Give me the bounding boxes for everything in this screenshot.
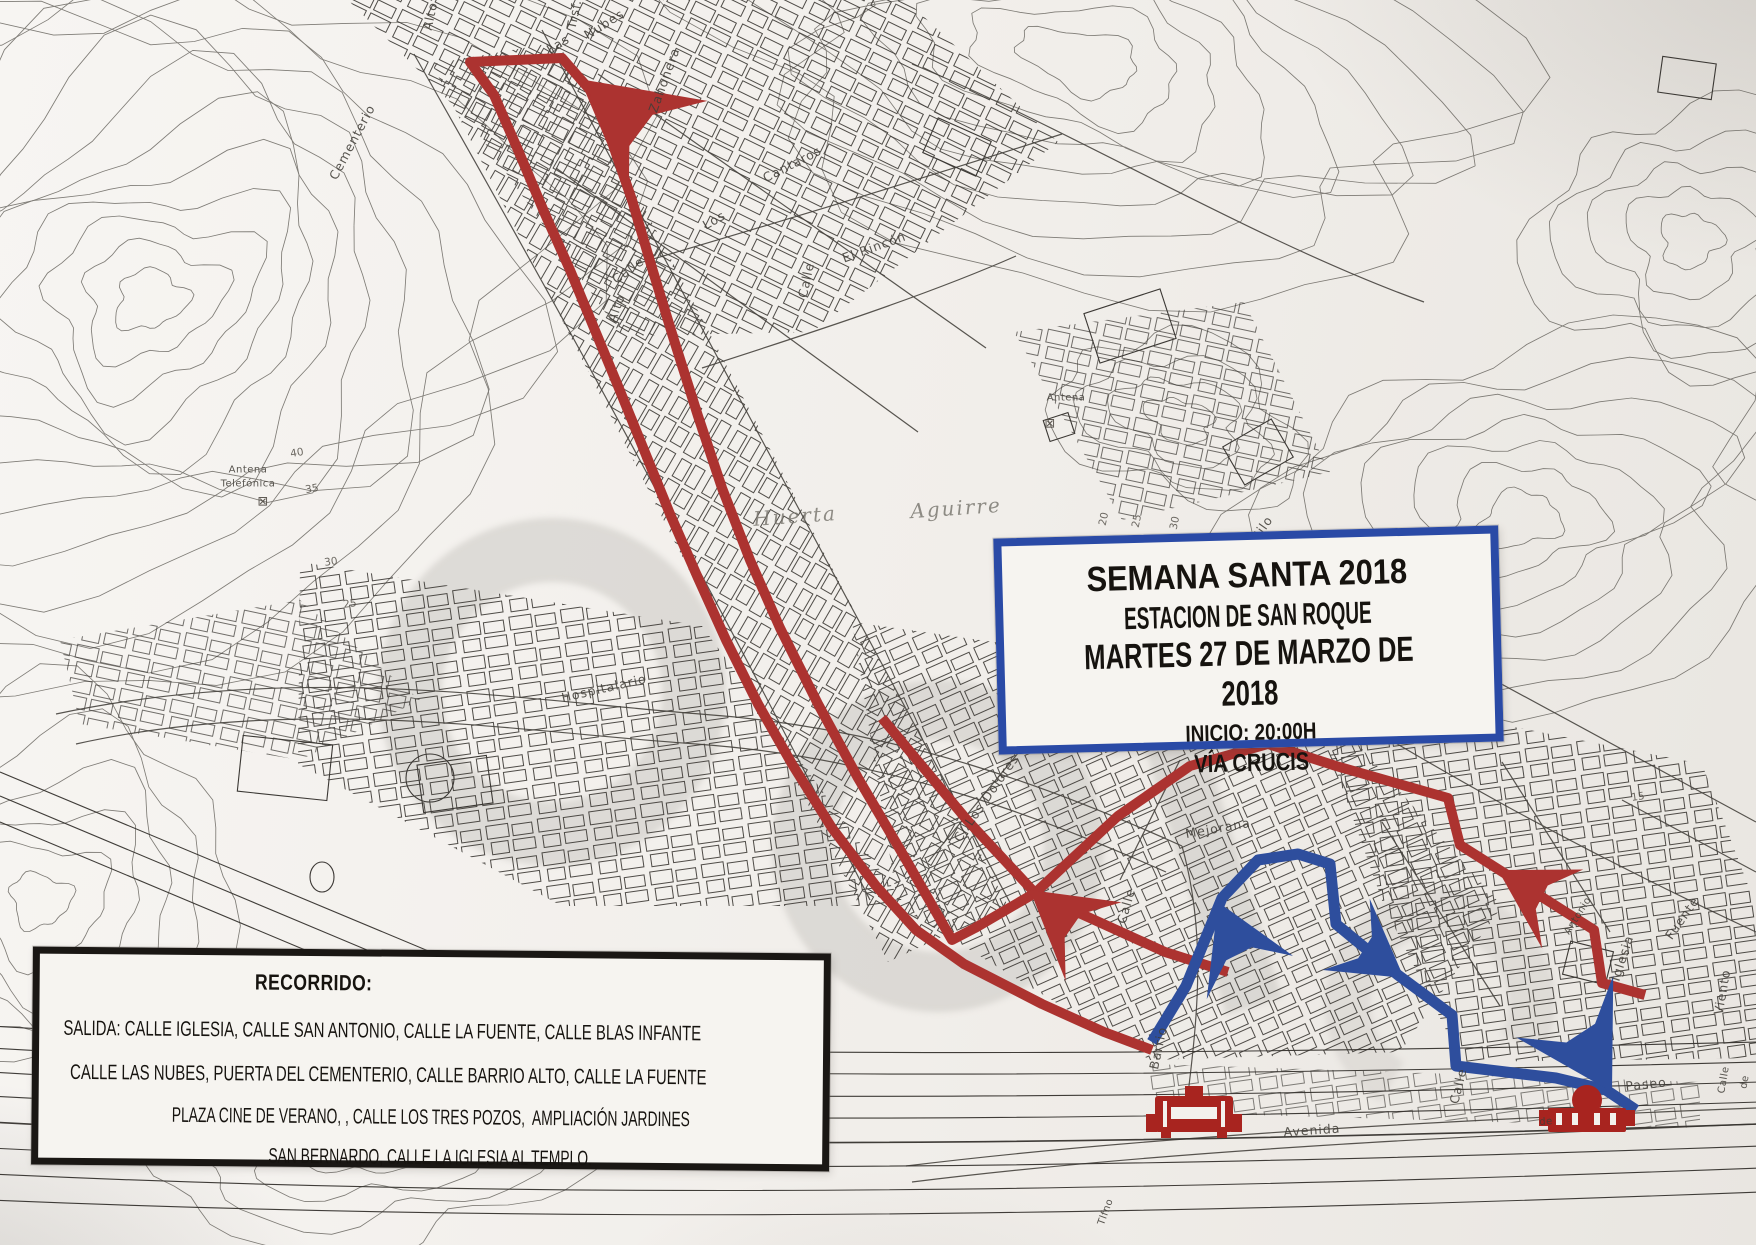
route-description-box: RECORRIDO: SALIDA: CALLE IGLESIA, CALLE … bbox=[31, 947, 831, 1172]
event-date: MARTES 27 DE MARZO DE 2018 bbox=[1070, 629, 1429, 718]
route-description-line: SAN BERNARDO, CALLE LA IGLESIA AL TEMPLO… bbox=[171, 1143, 689, 1174]
route-description-line: PLAZA CINE DE VERANO, , CALLE LOS TRES P… bbox=[172, 1103, 690, 1134]
route-description-line: SALIDA: CALLE IGLESIA, CALLE SAN ANTONIO… bbox=[39, 1016, 596, 1047]
route-description-line: CALLE LAS NUBES, PUERTA DEL CEMENTERIO, … bbox=[39, 1060, 596, 1091]
event-title: SEMANA SANTA 2018 bbox=[1031, 550, 1462, 601]
event-title-box: SEMANA SANTA 2018 ESTACION DE SAN ROQUE … bbox=[993, 525, 1503, 754]
scanned-route-map: AltoTrsf.LasNubesCementerioZahoneraCanta… bbox=[0, 0, 1756, 1245]
route-description-title: RECORRIDO: bbox=[0, 967, 627, 998]
